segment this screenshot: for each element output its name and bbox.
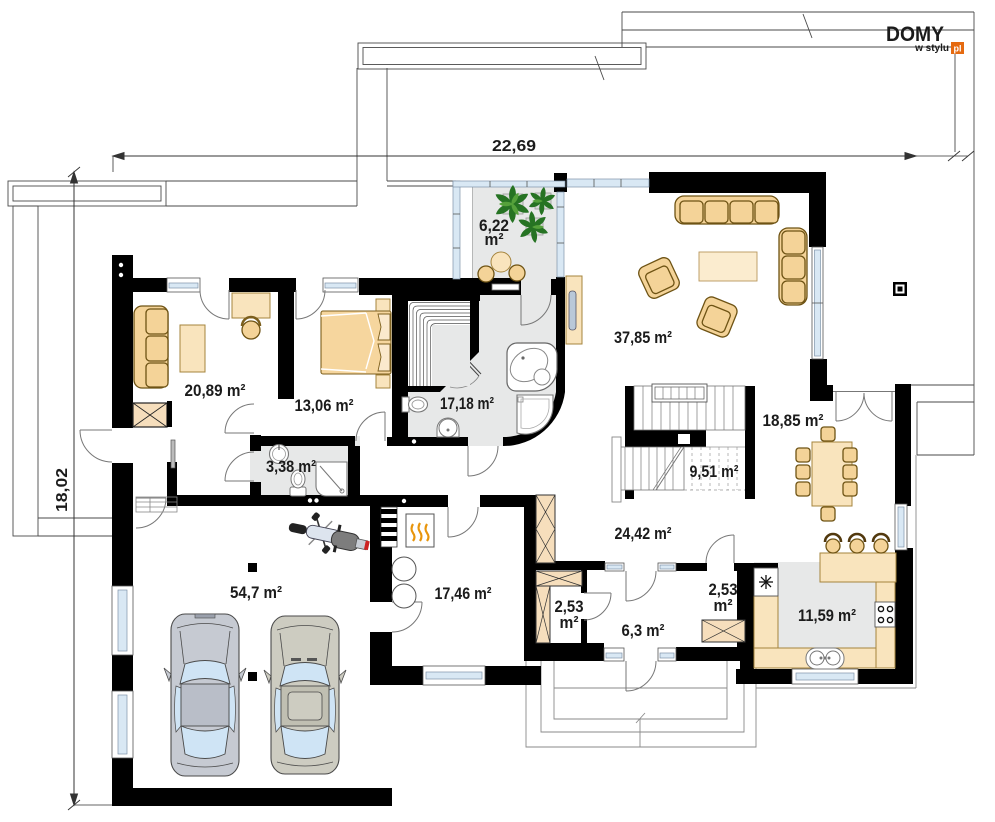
svg-text:17,18 m²: 17,18 m² — [440, 394, 494, 413]
svg-text:20,89 m²: 20,89 m² — [185, 381, 246, 400]
svg-text:18,02: 18,02 — [54, 468, 71, 512]
svg-text:54,7 m²: 54,7 m² — [230, 583, 282, 602]
svg-text:pl: pl — [954, 44, 962, 54]
svg-text:18,85 m²: 18,85 m² — [763, 411, 824, 430]
svg-text:6,3 m²: 6,3 m² — [622, 621, 665, 640]
svg-text:11,59 m²: 11,59 m² — [798, 606, 856, 625]
svg-text:w stylu: w stylu — [914, 43, 949, 54]
svg-text:13,06 m²: 13,06 m² — [295, 396, 354, 415]
svg-text:17,46 m²: 17,46 m² — [435, 584, 492, 603]
svg-text:9,51 m²: 9,51 m² — [690, 462, 739, 481]
svg-text:22,69: 22,69 — [492, 138, 536, 155]
svg-text:m²: m² — [714, 596, 733, 615]
svg-text:m²: m² — [485, 230, 504, 249]
svg-text:3,38 m²: 3,38 m² — [266, 457, 316, 476]
svg-text:m²: m² — [560, 613, 579, 632]
svg-text:37,85 m²: 37,85 m² — [614, 328, 672, 347]
svg-text:24,42 m²: 24,42 m² — [615, 524, 672, 543]
